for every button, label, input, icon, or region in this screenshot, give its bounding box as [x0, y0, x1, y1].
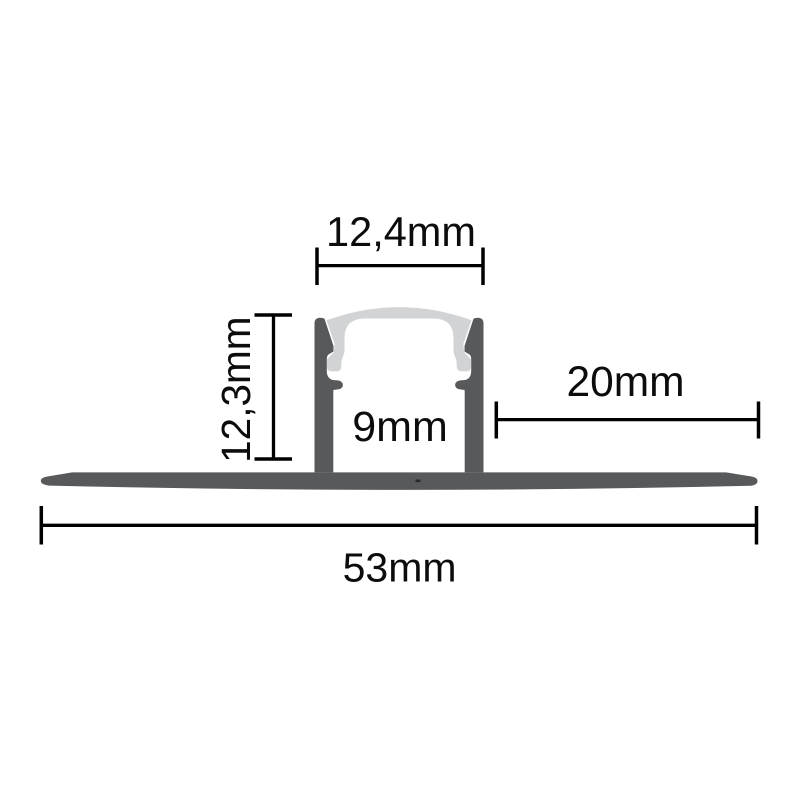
svg-text:12,4mm: 12,4mm [326, 208, 476, 255]
svg-text:53mm: 53mm [343, 545, 457, 591]
svg-text:9mm: 9mm [352, 403, 448, 451]
svg-text:12,3mm: 12,3mm [213, 317, 259, 463]
svg-text:20mm: 20mm [566, 359, 684, 406]
